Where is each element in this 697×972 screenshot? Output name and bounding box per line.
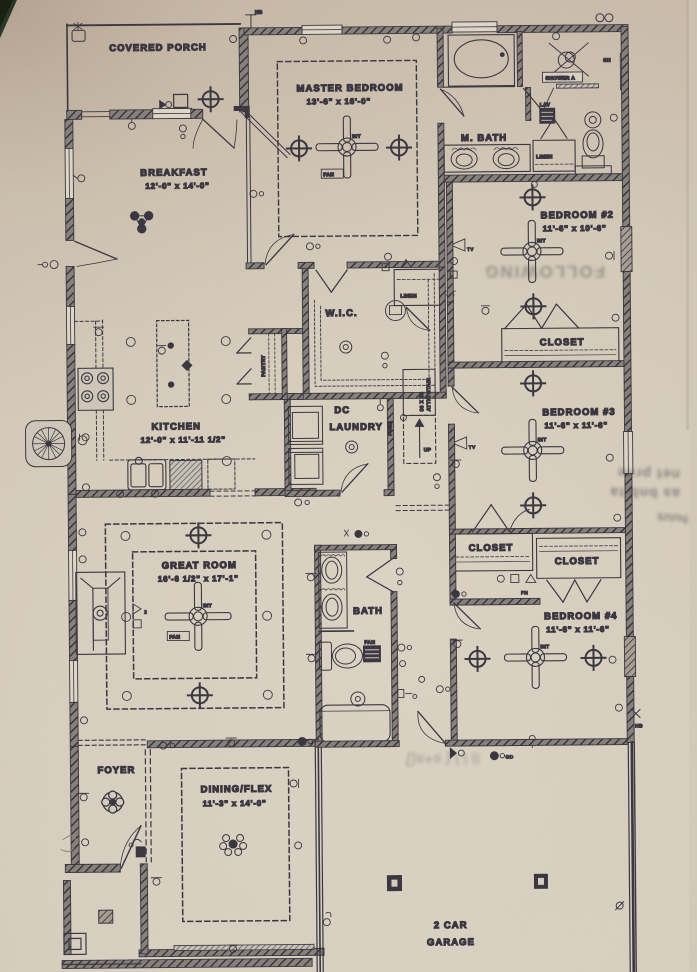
svg-text:INT: INT	[540, 644, 549, 650]
svg-text:GD: GD	[505, 755, 513, 761]
svg-text:as bnb ta: as bnb ta	[609, 485, 680, 502]
svg-text:INT: INT	[537, 238, 546, 244]
svg-text:CLOSET: CLOSET	[540, 337, 585, 348]
svg-text:SH: SH	[603, 58, 611, 64]
svg-text:UP: UP	[424, 447, 432, 453]
svg-text:CLOSET: CLOSET	[469, 543, 514, 554]
svg-text:CLOSET: CLOSET	[555, 556, 600, 567]
svg-text:DC: DC	[334, 405, 350, 416]
svg-text:BATH: BATH	[353, 606, 383, 617]
svg-text:INT: INT	[203, 603, 212, 609]
svg-text:LAV: LAV	[540, 102, 551, 108]
svg-text:BEDROOM #4: BEDROOM #4	[544, 611, 617, 623]
svg-text:GARAGE: GARAGE	[427, 937, 475, 948]
svg-text:FOLLOWING: FOLLOWING	[483, 262, 605, 281]
svg-text:BEDROOM #2: BEDROOM #2	[541, 210, 614, 222]
svg-text:11'-6" x 11'-6": 11'-6" x 11'-6"	[546, 625, 610, 635]
svg-text:2 CAR: 2 CAR	[434, 920, 468, 931]
svg-text:HB: HB	[635, 723, 643, 729]
svg-text:FAN: FAN	[323, 172, 334, 178]
svg-text:DINING/FLEX: DINING/FLEX	[201, 784, 273, 796]
svg-text:W.I.C.: W.I.C.	[325, 308, 357, 319]
svg-text:KITCHEN: KITCHEN	[151, 421, 201, 432]
svg-text:TV: TV	[469, 445, 476, 451]
svg-text:net prne: net prne	[616, 465, 680, 483]
svg-text:11'-6" x 10'-6": 11'-6" x 10'-6"	[543, 224, 607, 234]
svg-text:2: 2	[144, 610, 147, 616]
svg-text:30 X 54: 30 X 54	[419, 392, 425, 411]
svg-text:\\ \ \ ( s+s(]: \\ \ \ ( s+s(]	[405, 749, 480, 769]
svg-text:FUSE: FUSE	[387, 421, 393, 436]
svg-text:FN: FN	[521, 590, 528, 596]
svg-text:INT: INT	[352, 134, 361, 140]
svg-text:INT: INT	[538, 437, 547, 443]
svg-text:LAUNDRY: LAUNDRY	[329, 422, 383, 433]
svg-text:BEDROOM #3: BEDROOM #3	[542, 407, 615, 419]
svg-text:12'-0" x 11'-11 1/2": 12'-0" x 11'-11 1/2"	[141, 435, 226, 445]
svg-text:COVERED PORCH: COVERED PORCH	[109, 42, 207, 54]
svg-text:LINEN: LINEN	[536, 154, 553, 160]
svg-text:PANTRY: PANTRY	[261, 355, 267, 377]
svg-text:M. BATH: M. BATH	[461, 133, 507, 144]
svg-text:FAN: FAN	[169, 634, 180, 640]
svg-text:MASTER BEDROOM: MASTER BEDROOM	[296, 83, 403, 95]
svg-text:FOYER: FOYER	[97, 765, 135, 776]
svg-text:12'-0" x 14'-0": 12'-0" x 14'-0"	[145, 181, 209, 191]
svg-text:LINEN: LINEN	[400, 293, 417, 299]
svg-text:huus: huus	[657, 510, 689, 527]
svg-text:GREAT ROOM: GREAT ROOM	[162, 560, 237, 572]
svg-text:SHOWER A: SHOWER A	[545, 76, 575, 82]
svg-text:BREAKFAST: BREAKFAST	[140, 167, 208, 179]
svg-text:TV: TV	[467, 247, 474, 253]
svg-text:FAN: FAN	[364, 640, 375, 646]
svg-text:11'-3" x 14'-0": 11'-3" x 14'-0"	[203, 799, 267, 809]
svg-text:11'-6" x 11'-6": 11'-6" x 11'-6"	[544, 421, 608, 431]
svg-text:13'-6" x 16'-0": 13'-6" x 16'-0"	[307, 97, 371, 107]
svg-text:ATTIC STAIR: ATTIC STAIR	[426, 378, 432, 412]
